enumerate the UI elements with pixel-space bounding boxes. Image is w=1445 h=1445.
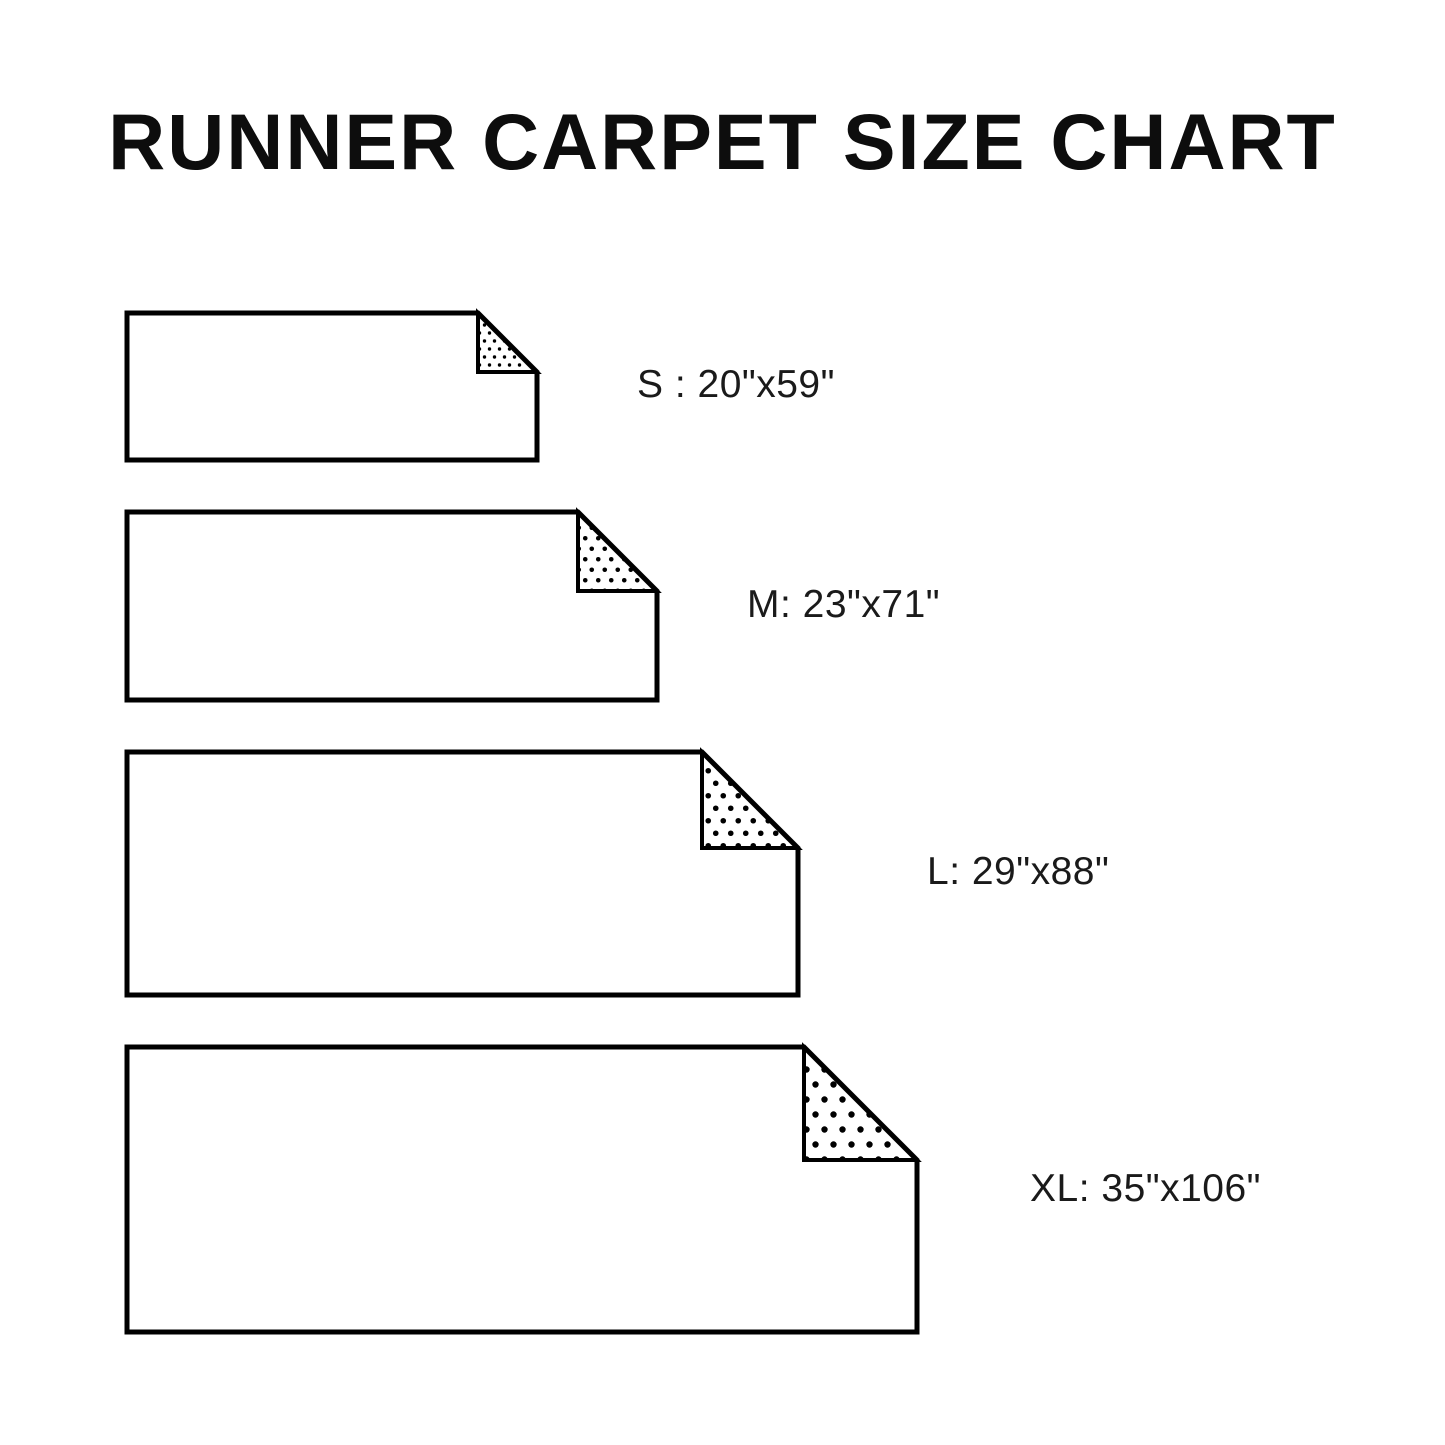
page-title: RUNNER CARPET SIZE CHART: [108, 96, 1337, 188]
carpet-shape-XL: [121, 1041, 923, 1338]
carpet-shape-L: [121, 746, 804, 1001]
size-chart-page: RUNNER CARPET SIZE CHART S : 20"x59"M: 2…: [0, 0, 1445, 1445]
size-label-M: M: 23"x71": [747, 583, 940, 627]
carpet-shape-S: [121, 307, 543, 466]
fold-flap: [804, 1047, 917, 1160]
fold-flap: [702, 752, 798, 848]
carpet-outline: [127, 1047, 917, 1332]
size-label-S: S : 20"x59": [637, 363, 835, 407]
size-label-XL: XL: 35"x106": [1030, 1167, 1261, 1211]
carpet-shape-M: [121, 506, 663, 706]
size-label-L: L: 29"x88": [927, 850, 1109, 894]
fold-flap: [478, 313, 537, 372]
fold-flap: [578, 512, 657, 591]
carpet-outline: [127, 752, 798, 995]
carpet-outline: [127, 313, 537, 460]
